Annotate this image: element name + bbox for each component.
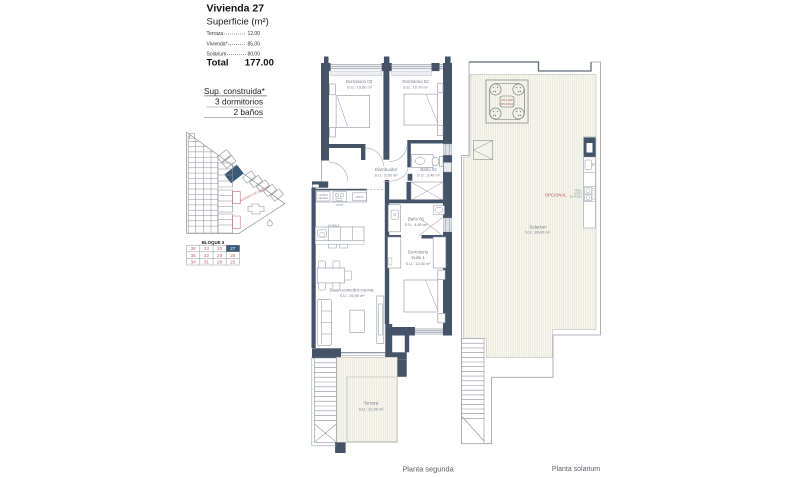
svg-text:32: 32	[204, 253, 210, 259]
svg-text:85,00: 85,00	[247, 42, 260, 48]
svg-text:OPCIONAL: OPCIONAL	[499, 102, 515, 106]
svg-text:Vivienda 27: Vivienda 27	[207, 3, 265, 15]
svg-text:S.U.: 4,60 m²: S.U.: 4,60 m²	[405, 222, 429, 227]
svg-text:FRIGO: FRIGO	[355, 195, 363, 199]
svg-text:S.U.: 5,50 m²: S.U.: 5,50 m²	[375, 173, 399, 178]
svg-text:S.U.: 10,70 m²: S.U.: 10,70 m²	[403, 85, 429, 90]
svg-text:S.U.: 12,00 m²: S.U.: 12,00 m²	[358, 406, 384, 411]
svg-text:2 baños: 2 baños	[233, 107, 263, 117]
svg-text:Dormitorio 03: Dormitorio 03	[346, 79, 373, 84]
svg-text:cocina: cocina	[336, 202, 344, 206]
svg-text:Terraza: Terraza	[364, 401, 379, 406]
svg-text:OPCIONAL: OPCIONAL	[545, 193, 567, 198]
svg-text:S.U.: 26,90 m²: S.U.: 26,90 m²	[339, 293, 365, 298]
svg-text:MUEBLE: MUEBLE	[328, 223, 340, 227]
svg-text:28: 28	[217, 259, 223, 265]
svg-text:SECADO: SECADO	[318, 197, 328, 200]
svg-text:Distribuidor: Distribuidor	[375, 167, 398, 172]
svg-text:Dormitorio: Dormitorio	[408, 250, 429, 255]
svg-text:33: 33	[204, 246, 210, 252]
svg-text:3 dormitorios: 3 dormitorios	[215, 97, 263, 107]
svg-text:Sup. construida*: Sup. construida*	[204, 86, 266, 96]
svg-text:27: 27	[230, 246, 236, 252]
svg-text:35: 35	[191, 253, 197, 259]
svg-text:Baño 01: Baño 01	[408, 217, 425, 222]
svg-text:Superficie (m²): Superficie (m²)	[207, 17, 269, 28]
svg-text:Terraza: Terraza	[207, 31, 224, 37]
svg-text:S.U.: 80,00 m²: S.U.: 80,00 m²	[525, 230, 551, 235]
svg-text:Vivienda*: Vivienda*	[207, 42, 228, 48]
svg-text:Suite 1: Suite 1	[411, 255, 425, 260]
svg-text:Dormitorio 02: Dormitorio 02	[402, 79, 429, 84]
svg-text:177.00: 177.00	[245, 58, 274, 69]
svg-text:S.U.: 3,40 m²: S.U.: 3,40 m²	[417, 173, 441, 178]
svg-text:30: 30	[217, 246, 223, 252]
svg-text:25: 25	[230, 259, 236, 265]
svg-text:BLOQUE 3: BLOQUE 3	[202, 240, 225, 245]
svg-text:Planta segunda: Planta segunda	[402, 465, 454, 474]
svg-text:26: 26	[230, 253, 236, 259]
svg-text:Baño 02: Baño 02	[420, 167, 437, 172]
svg-text:Planta solarium: Planta solarium	[552, 466, 600, 473]
svg-text:36: 36	[191, 246, 197, 252]
svg-text:31: 31	[204, 259, 210, 265]
svg-text:S.U.: 10,60 m²: S.U.: 10,60 m²	[347, 85, 373, 90]
svg-text:BQ.PLANO: BQ.PLANO	[570, 196, 582, 199]
svg-text:34: 34	[191, 259, 197, 265]
svg-text:29: 29	[217, 253, 223, 259]
svg-text:Total: Total	[207, 58, 229, 69]
svg-text:S.U.: 12,00 m²: S.U.: 12,00 m²	[405, 261, 431, 266]
svg-text:12,00: 12,00	[247, 31, 260, 37]
